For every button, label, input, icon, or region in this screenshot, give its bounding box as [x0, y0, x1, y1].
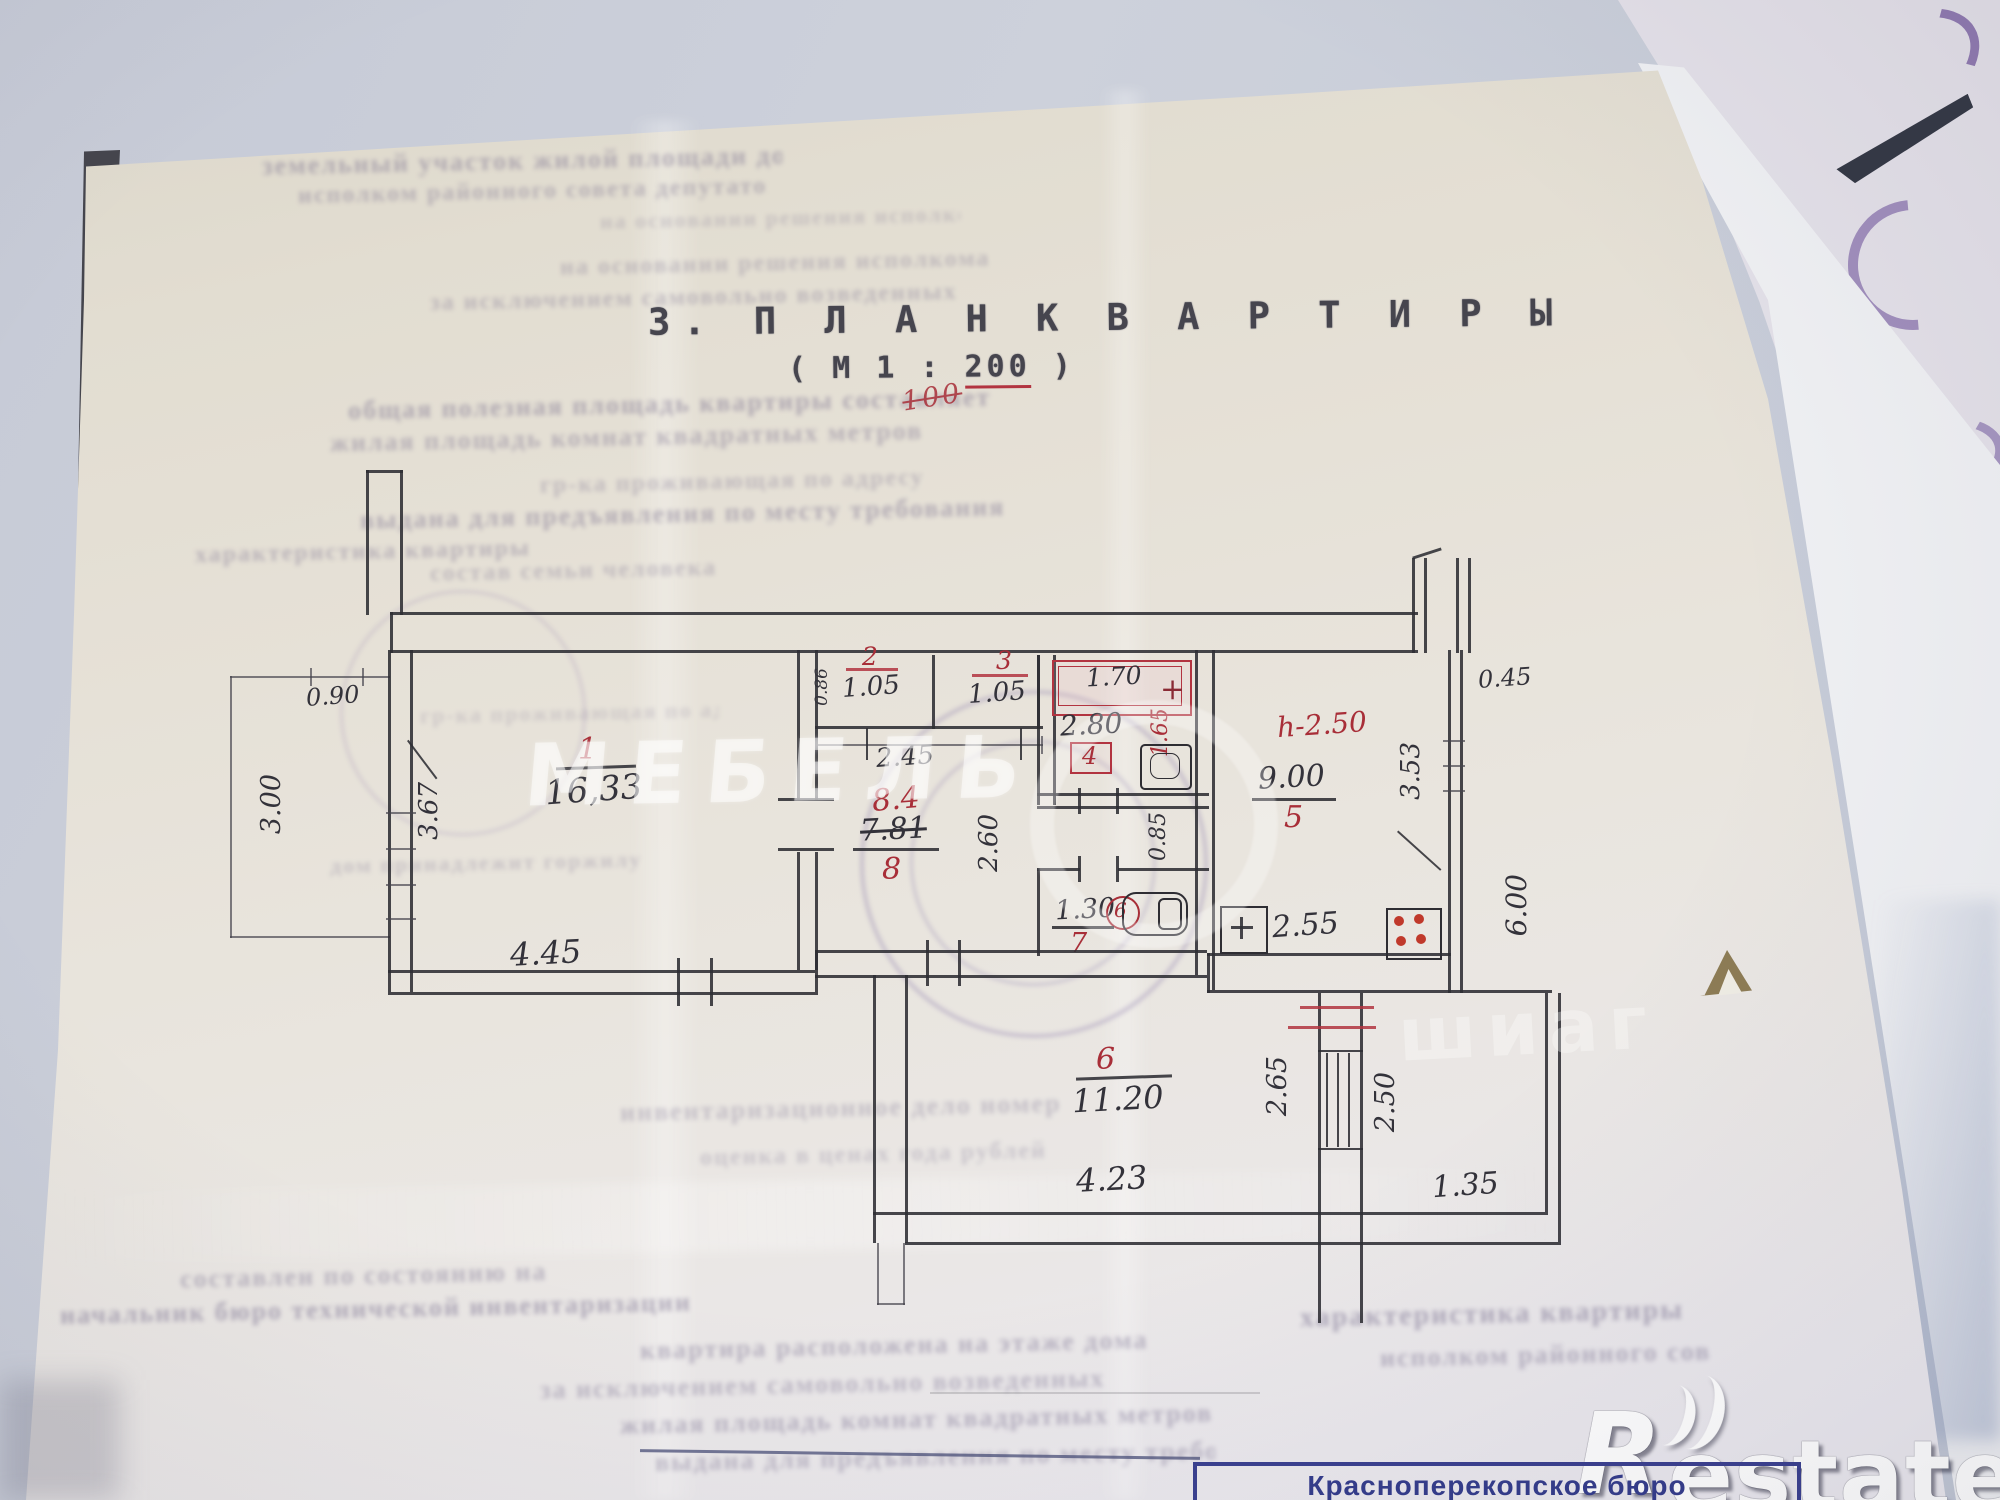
scale-value: 200: [964, 349, 1031, 389]
window-hatch: [1443, 740, 1465, 742]
wall: [905, 1242, 1558, 1245]
wall: [1360, 993, 1363, 1323]
wall: [390, 612, 1418, 615]
dim-hall-depth: 2.60: [974, 814, 1004, 872]
room8-number: 8: [882, 852, 901, 887]
balcony-wall: [230, 676, 232, 938]
room2-area: 1.05: [841, 670, 901, 704]
door-tick: [958, 940, 961, 986]
wall: [388, 650, 391, 992]
door-tick: [926, 940, 929, 986]
scale-suffix: ): [1030, 348, 1074, 383]
room6-area: 11.20: [1071, 1078, 1164, 1121]
dim-lower-right-width: 1.35: [1431, 1166, 1500, 1206]
wall: [390, 650, 1418, 653]
window-frame: [1318, 1050, 1363, 1052]
corner-shadow: [0, 1380, 120, 1500]
balcony-wall: [877, 1243, 879, 1305]
wall: [366, 470, 369, 615]
wall: [815, 950, 1207, 953]
window-line: [1348, 1053, 1350, 1147]
dim-kitchen-side: 3.53: [1396, 742, 1426, 800]
watermark-center: МЕБЕЛЬ: [520, 718, 1043, 827]
opening-hatch: [1288, 1026, 1376, 1029]
wall: [1037, 868, 1040, 956]
balcony-edge: [930, 1392, 1260, 1394]
tick: [677, 958, 680, 1006]
wall: [388, 970, 815, 973]
dim-balcony-opening: 0.90: [305, 680, 360, 712]
balcony-wall: [877, 1303, 905, 1305]
dim-room1-width: 4.45: [509, 932, 582, 974]
wall: [873, 975, 876, 1243]
dim-balcony-height: 3.00: [256, 774, 287, 834]
dim-room6-width: 4.23: [1075, 1158, 1148, 1200]
room6-number: 6: [1096, 1042, 1115, 1077]
window-hatch: [386, 884, 416, 886]
dim-kitchen-balcony-depth: 2.65: [1262, 1056, 1293, 1116]
watermark-ring: [1030, 700, 1278, 948]
bureau-stamp-box: Красноперекопское бюро технической инвен…: [1193, 1462, 1801, 1500]
balcony-wall: [903, 1243, 905, 1305]
window-hatch: [1443, 765, 1465, 767]
dim-right-side: 6.00: [1500, 874, 1533, 936]
dim-entry-depth: 0.45: [1477, 662, 1532, 694]
room3-area: 1.05: [967, 676, 1027, 710]
wall: [905, 975, 908, 1243]
wall: [1456, 558, 1459, 653]
window-hatch: [386, 812, 416, 814]
door-tick: [778, 848, 834, 851]
dim-closet-depth: 0.86: [812, 668, 832, 706]
wall: [1448, 650, 1451, 993]
window-hatch: [386, 848, 416, 850]
wall: [390, 612, 393, 653]
wall: [1468, 558, 1471, 653]
wall: [1424, 558, 1427, 653]
tick: [710, 958, 713, 1006]
watermark-side: шиаг: [1396, 979, 1659, 1078]
balcony-wall: [230, 936, 390, 938]
wall: [1412, 558, 1415, 653]
stove-burner: [1416, 934, 1426, 944]
dim-kitchen-balcony-width: 2.50: [1370, 1072, 1401, 1132]
wall: [815, 950, 818, 995]
fraction-line: [853, 848, 939, 851]
wall: [1318, 993, 1321, 1323]
room2-number: 2: [862, 642, 878, 671]
window-hatch: [386, 918, 416, 920]
kitchen-sink-cross-icon: [1240, 917, 1243, 939]
room5-number: 5: [1284, 800, 1303, 835]
dim-kitchen-width: 2.55: [1271, 906, 1340, 946]
stove-burner: [1414, 914, 1424, 924]
kitchen-height-note: h-2.50: [1276, 705, 1368, 744]
dim-room1-side: 3.67: [414, 782, 444, 840]
wall: [797, 852, 800, 970]
window-hatch: [1443, 790, 1465, 792]
wall: [1207, 953, 1210, 993]
window-line: [1337, 1053, 1339, 1147]
wall: [388, 992, 815, 995]
stove-burner: [1394, 916, 1404, 926]
room7-number: 7: [1070, 928, 1087, 959]
wall: [410, 650, 413, 992]
dim-bathtub: 1.70: [1085, 661, 1142, 693]
wall: [932, 655, 935, 729]
window-frame: [1318, 1148, 1363, 1150]
wall: [873, 1212, 1545, 1215]
stove-burner: [1396, 936, 1406, 946]
opening-hatch: [1300, 1006, 1374, 1009]
wall: [1460, 650, 1463, 993]
wall: [400, 470, 403, 615]
wall: [366, 470, 403, 473]
room3-number: 3: [996, 646, 1012, 675]
bureau-stamp-line1: Красноперекопское бюро: [1197, 1470, 1797, 1500]
tick: [362, 668, 364, 686]
scanned-floorplan-photo: земельный участок жилой площади домаиспо…: [0, 0, 2000, 1500]
window-line: [1326, 1053, 1328, 1147]
